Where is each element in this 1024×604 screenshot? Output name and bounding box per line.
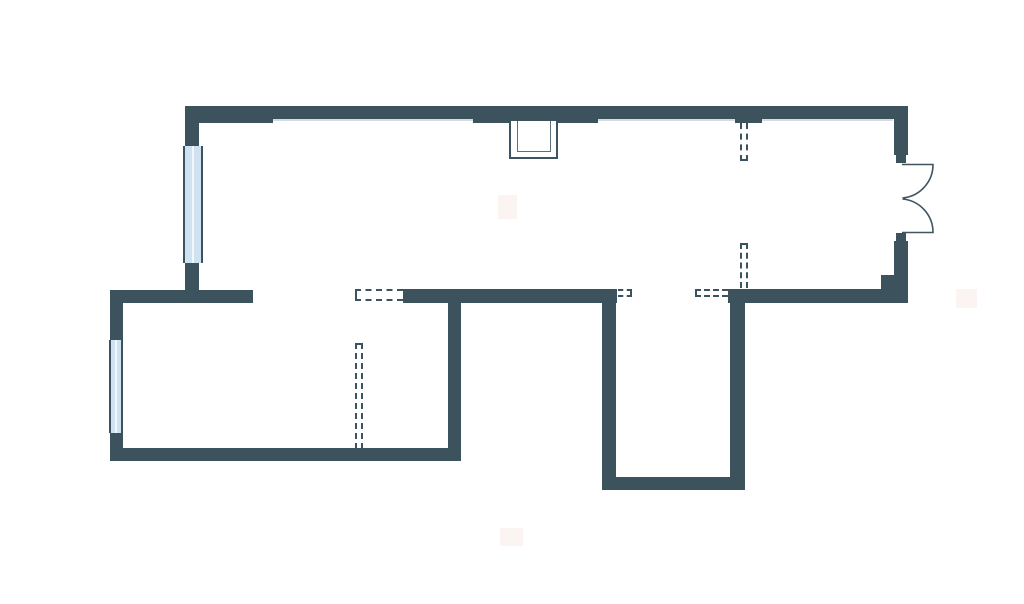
entrance-double-door-leaf-2 [902,199,933,233]
floor-plan-canvas [0,0,1024,604]
entrance-double-door-leaf-1 [902,165,933,199]
entrance-double-door [0,0,1024,604]
